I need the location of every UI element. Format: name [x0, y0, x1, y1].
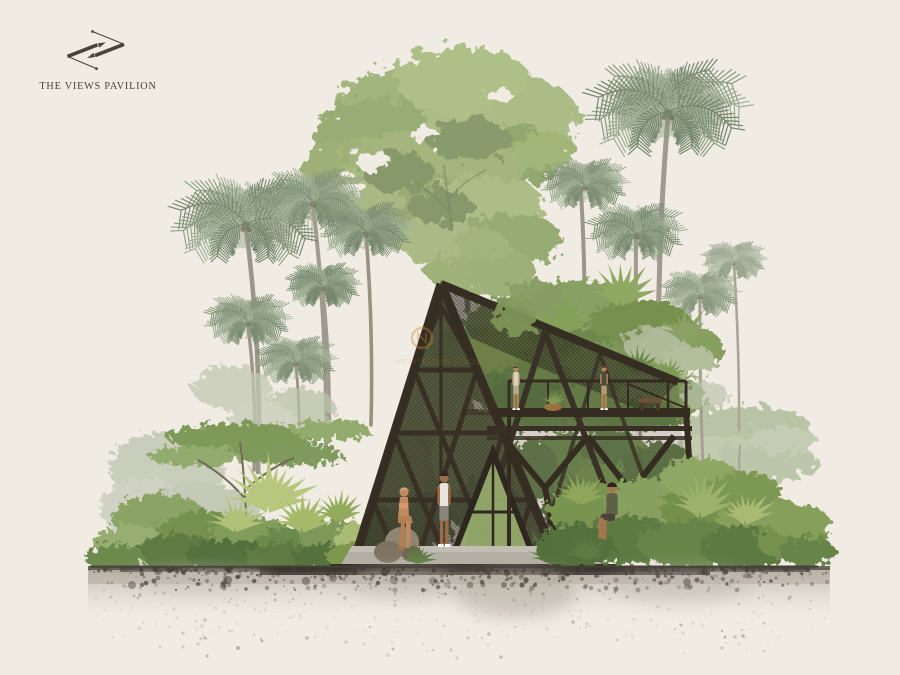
svg-text:THE VIEWS PAVILION: THE VIEWS PAVILION [39, 81, 156, 92]
svg-text:ARCHITECTURE STUDIO: ARCHITECTURE STUDIO [393, 357, 482, 366]
